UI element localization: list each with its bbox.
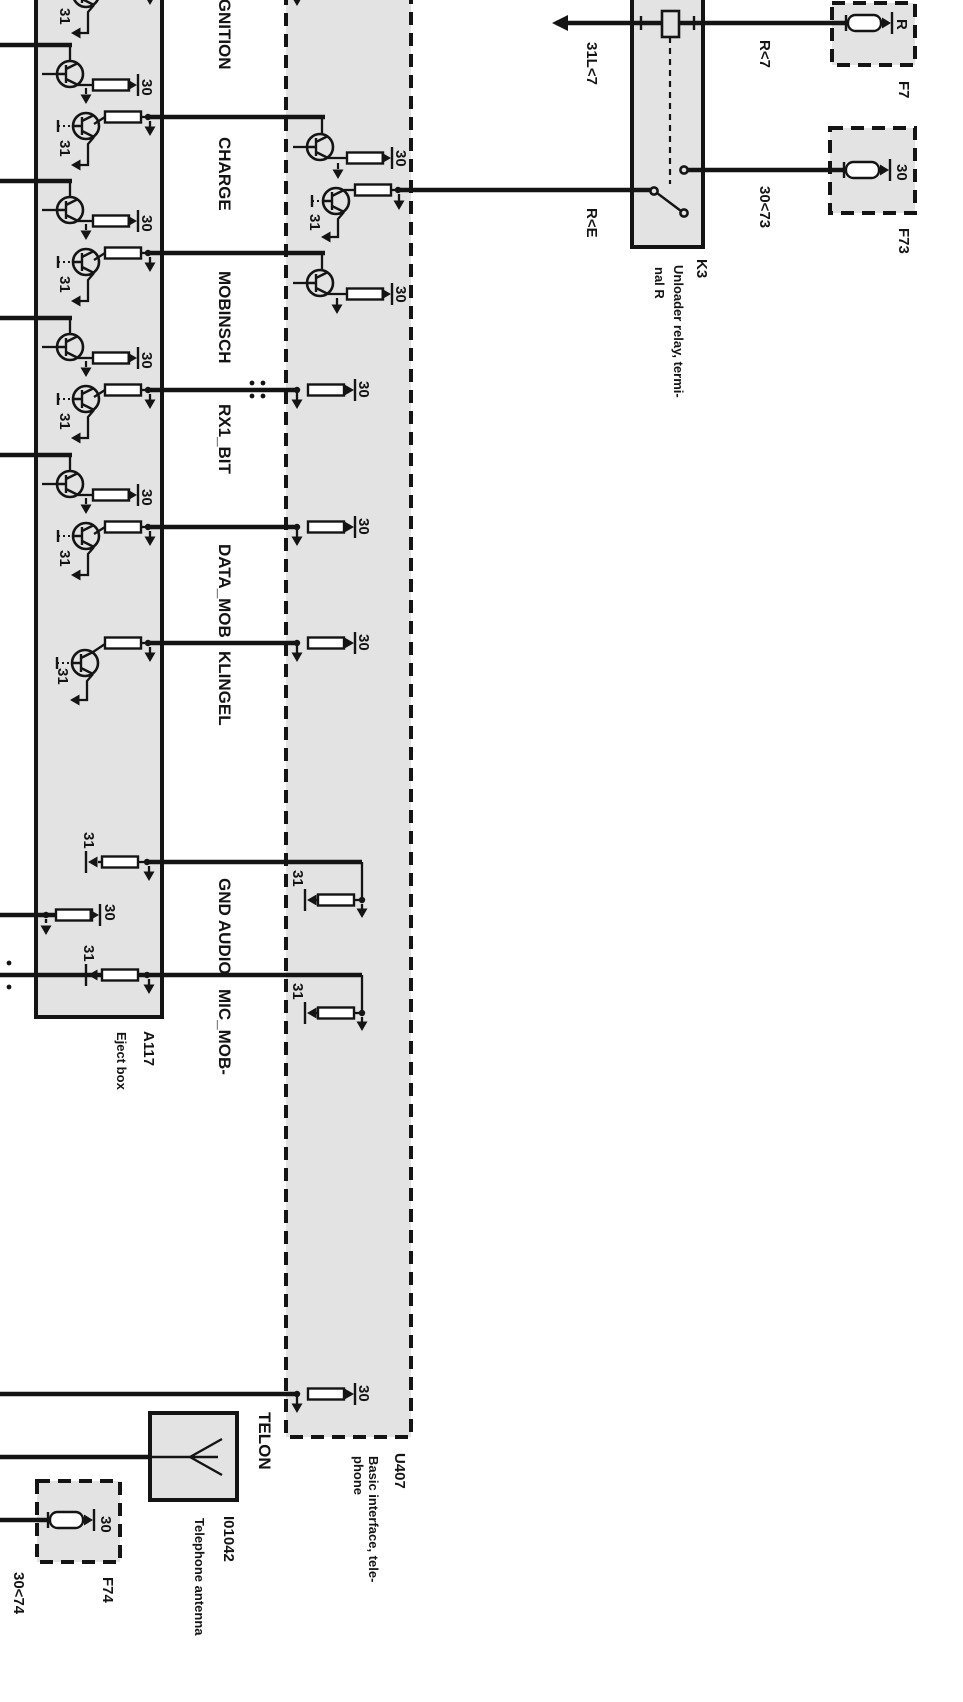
wire-end-arrow-icon (552, 15, 568, 31)
interface-box-u407 (286, 0, 411, 1437)
signal-label-mobinsch: MOBINSCH (215, 271, 234, 364)
component-desc-k3-line1: Unloader relay, termi- (671, 265, 686, 398)
terminal-31-label: 31 (80, 945, 97, 962)
terminal-30-label: 30 (355, 634, 372, 651)
signal-label-rx1-bit: RX1_BIT (215, 404, 234, 475)
signal-label-telon: TELON (255, 1412, 274, 1470)
signal-label-ignition: IGNITION (215, 0, 234, 70)
terminal-30-label: 30 (138, 215, 155, 232)
component-id-f7: F7 (895, 81, 912, 99)
terminal-31-label: 31 (54, 668, 71, 685)
wire-label-3073: 30<73 (756, 186, 773, 228)
wire-label-3074: 30<74 (10, 1572, 27, 1615)
eject-box-a117 (36, 0, 162, 1017)
fuse-terminal-f73: 30 (893, 164, 910, 181)
schematic-canvas: IGNITION CHARGE MOBINSCH RX1_BIT DATA_MO… (0, 0, 963, 1702)
terminal-30-label: 30 (138, 79, 155, 96)
signal-label-gnd-audio: GND AUDIO (215, 878, 234, 975)
signal-labels: IGNITION CHARGE MOBINSCH RX1_BIT DATA_MO… (215, 0, 274, 1470)
component-id-f74: F74 (99, 1577, 116, 1604)
terminal-31-label: 31 (56, 276, 73, 293)
signal-label-mic-mob: MIC_MOB- (215, 989, 234, 1075)
fuse-box-f7 (832, 3, 915, 65)
wire-label-r7: R<7 (756, 40, 773, 68)
terminal-30-label: 30 (138, 352, 155, 369)
terminal-31-label: 31 (80, 832, 97, 849)
terminal-31-label: 31 (56, 413, 73, 430)
terminal-30-label: 30 (101, 904, 118, 921)
terminal-31-label: 31 (56, 550, 73, 567)
wire-label-31l7: 31L<7 (583, 42, 600, 85)
fuse-terminal-f74: 30 (97, 1516, 114, 1533)
terminal-30-label: 30 (138, 489, 155, 506)
signal-label-charge: CHARGE (215, 137, 234, 211)
terminal-30-label: 30 (392, 286, 409, 303)
component-desc-k3-line2: nal R (652, 267, 667, 299)
component-desc-u407-line2: phone (351, 1456, 366, 1495)
component-desc-a117: Eject box (114, 1032, 129, 1091)
terminal-30-label: 30 (355, 518, 372, 535)
terminal-31-label: 31 (289, 870, 306, 887)
component-id-i01042: I01042 (220, 1516, 237, 1562)
wiring-diagram-page: IGNITION CHARGE MOBINSCH RX1_BIT DATA_MO… (0, 0, 963, 1702)
signal-label-klingel: KLINGEL (215, 651, 234, 726)
terminal-31-label: 31 (56, 140, 73, 157)
component-id-f73: F73 (895, 228, 912, 254)
signal-label-data-mob: DATA_MOB (215, 544, 234, 638)
relay-coil (662, 11, 679, 37)
terminal-31-label: 31 (306, 214, 323, 231)
terminal-31-label: 31 (56, 8, 73, 25)
terminal-30-label: 30 (355, 1385, 372, 1402)
terminal-31-label: 31 (289, 983, 306, 1000)
wire-label-re: R<E (583, 208, 600, 238)
component-id-k3: K3 (693, 259, 710, 278)
terminal-30-label: 30 (392, 150, 409, 167)
component-id-u407: U407 (391, 1453, 408, 1489)
terminal-30-label: 30 (355, 381, 372, 398)
fuse-terminal-f7: R (893, 19, 910, 30)
component-id-a117: A117 (140, 1031, 157, 1066)
component-desc-u407-line1: Basic interface, tele- (366, 1456, 381, 1582)
component-desc-i01042: Telephone antenna (192, 1518, 207, 1636)
